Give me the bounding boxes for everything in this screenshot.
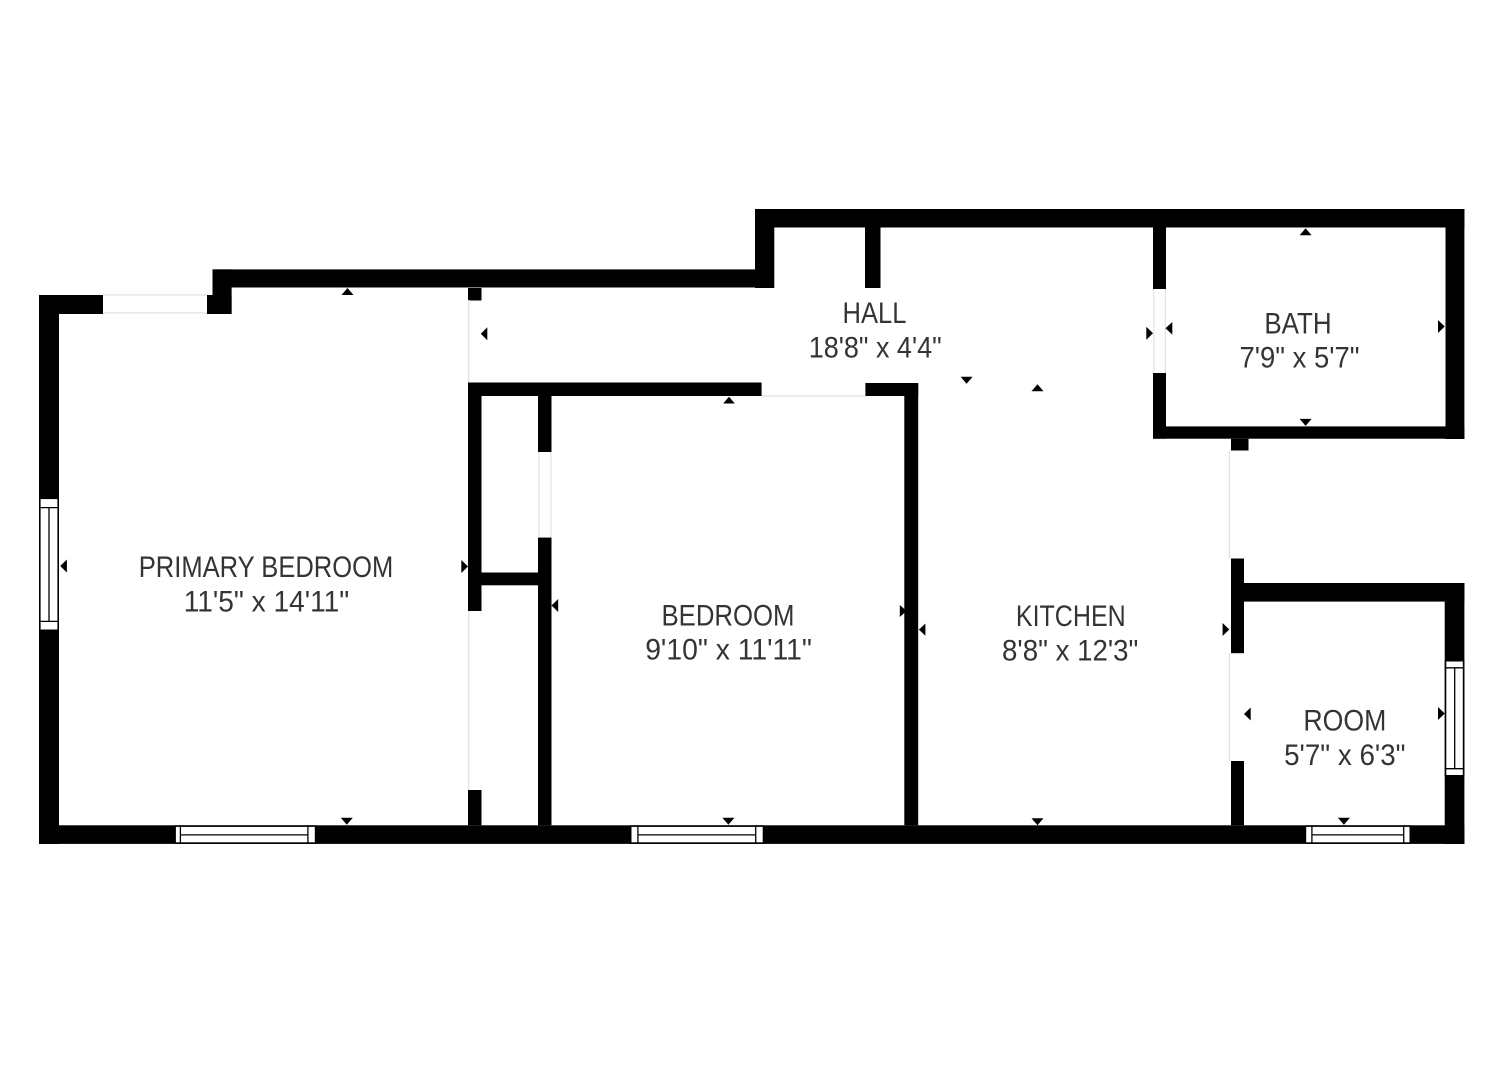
svg-text:BEDROOM: BEDROOM <box>662 599 795 632</box>
svg-text:18'8" x 4'4": 18'8" x 4'4" <box>809 332 942 365</box>
svg-text:5'7" x 6'3": 5'7" x 6'3" <box>1284 739 1405 772</box>
svg-text:11'5" x 14'11": 11'5" x 14'11" <box>184 586 350 619</box>
svg-text:7'9" x 5'7": 7'9" x 5'7" <box>1240 342 1360 375</box>
svg-text:BATH: BATH <box>1264 307 1331 340</box>
svg-text:9'10" x 11'11": 9'10" x 11'11" <box>645 634 812 667</box>
svg-text:KITCHEN: KITCHEN <box>1016 600 1126 633</box>
svg-text:PRIMARY BEDROOM: PRIMARY BEDROOM <box>139 551 394 584</box>
svg-text:8'8" x 12'3": 8'8" x 12'3" <box>1002 635 1138 668</box>
svg-text:ROOM: ROOM <box>1303 705 1386 738</box>
svg-text:HALL: HALL <box>843 297 907 330</box>
